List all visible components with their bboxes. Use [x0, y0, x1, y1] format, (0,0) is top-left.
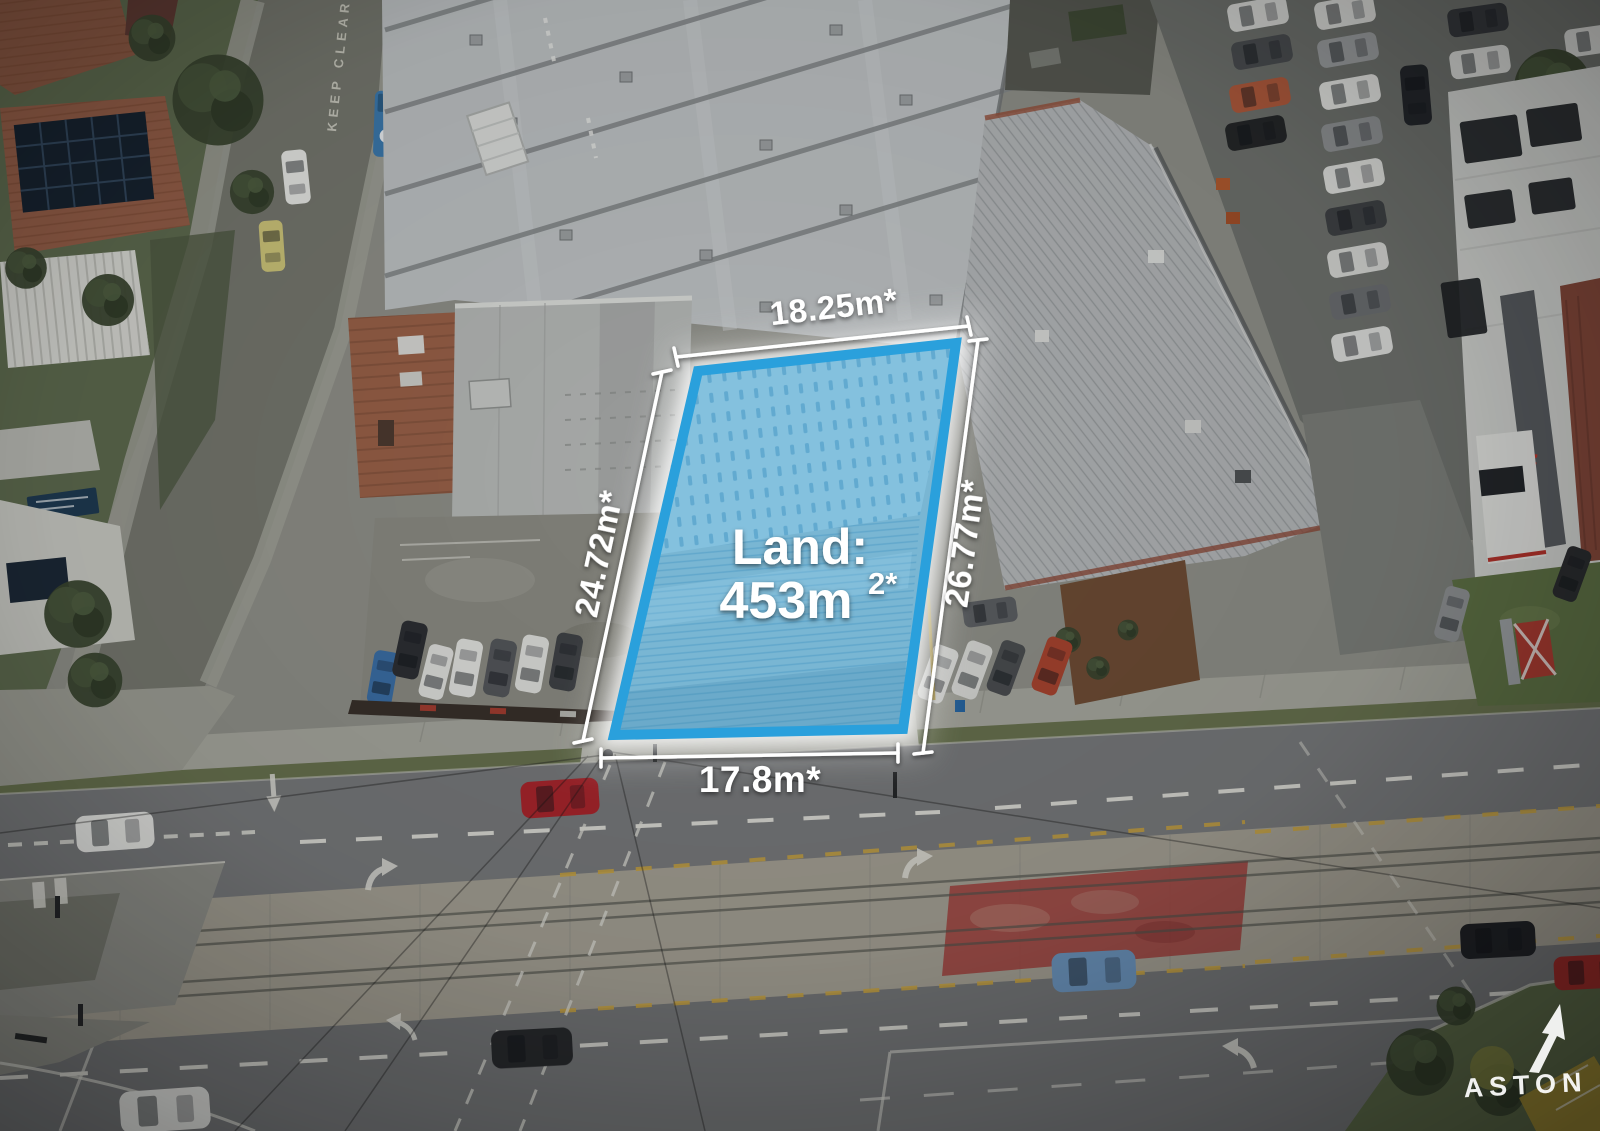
land-area-superscript: 2* — [868, 566, 898, 601]
dimension-label-bottom: 17.8m* — [699, 759, 821, 800]
land-area-value: 453m — [720, 572, 853, 630]
land-label: Land: — [732, 519, 868, 575]
aerial-scene: KEEP CLEAR — [0, 0, 1600, 1131]
aerial-property-photo: KEEP CLEAR — [0, 0, 1600, 1131]
